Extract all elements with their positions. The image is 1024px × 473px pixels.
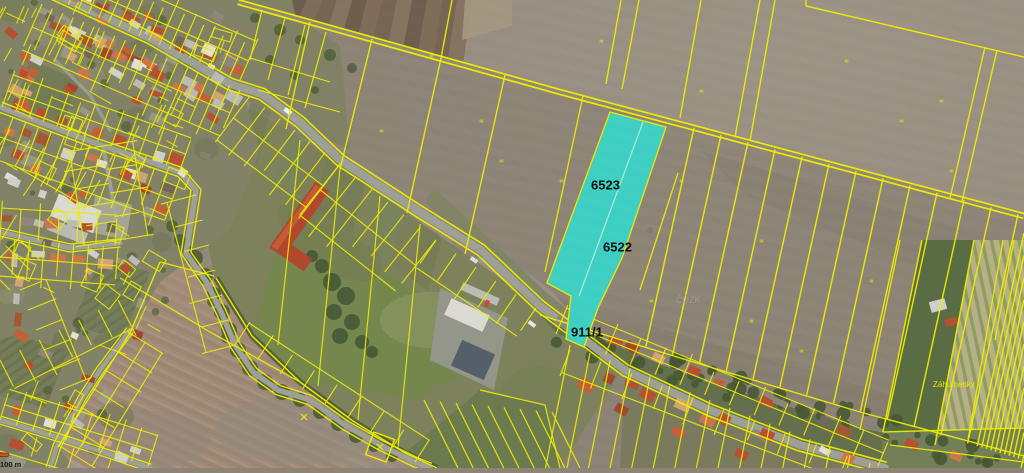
- svg-text:6522: 6522: [603, 240, 632, 255]
- svg-text:Záhumenky: Záhumenky: [933, 380, 975, 389]
- svg-text:911/1: 911/1: [571, 325, 603, 340]
- svg-text:100 m: 100 m: [0, 460, 22, 468]
- svg-text:ČÚZK: ČÚZK: [676, 295, 701, 305]
- svg-text:6523: 6523: [591, 178, 620, 193]
